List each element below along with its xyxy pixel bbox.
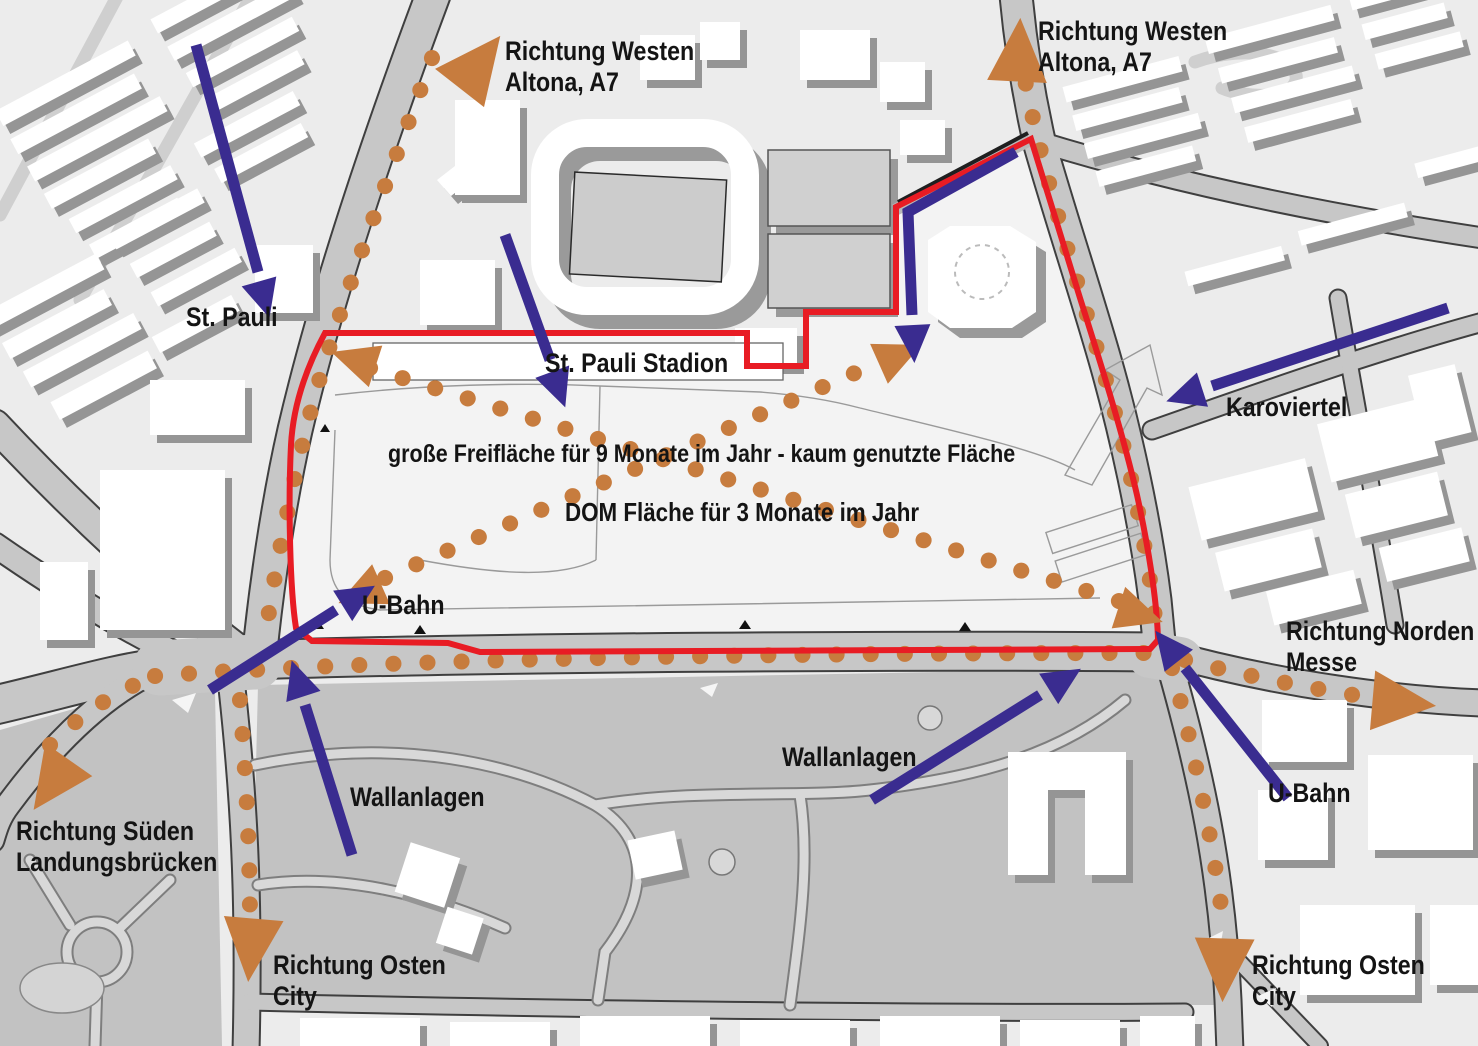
label-richtung-osten-right: Richtung OstenCity — [1252, 950, 1425, 1011]
label-st-pauli-stadion: St. Pauli Stadion — [545, 348, 728, 379]
label-freiflaeche: große Freifläche für 9 Monate im Jahr - … — [388, 440, 1015, 468]
label-ubahn-right: U-Bahn — [1268, 778, 1351, 809]
label-richtung-westen-right: Richtung WestenAltona, A7 — [1038, 16, 1227, 77]
label-dom-flaeche: DOM Fläche für 3 Monate im Jahr — [565, 498, 919, 527]
map-canvas: Richtung WestenAltona, A7 Richtung Weste… — [0, 0, 1478, 1046]
label-richtung-sueden: Richtung SüdenLandungsbrücken — [16, 816, 217, 877]
label-wallanlagen-center: Wallanlagen — [782, 742, 917, 773]
label-richtung-norden: Richtung NordenMesse — [1286, 616, 1474, 677]
label-st-pauli: St. Pauli — [186, 302, 278, 333]
sports-courts — [768, 150, 898, 317]
pond — [20, 963, 104, 1013]
label-karoviertel: Karoviertel — [1226, 392, 1347, 423]
label-richtung-osten-left: Richtung OstenCity — [273, 950, 446, 1011]
bunker — [928, 226, 1046, 338]
label-wallanlagen-left: Wallanlagen — [350, 782, 485, 813]
label-richtung-westen-left: Richtung WestenAltona, A7 — [505, 36, 694, 97]
label-ubahn-left: U-Bahn — [362, 590, 445, 621]
